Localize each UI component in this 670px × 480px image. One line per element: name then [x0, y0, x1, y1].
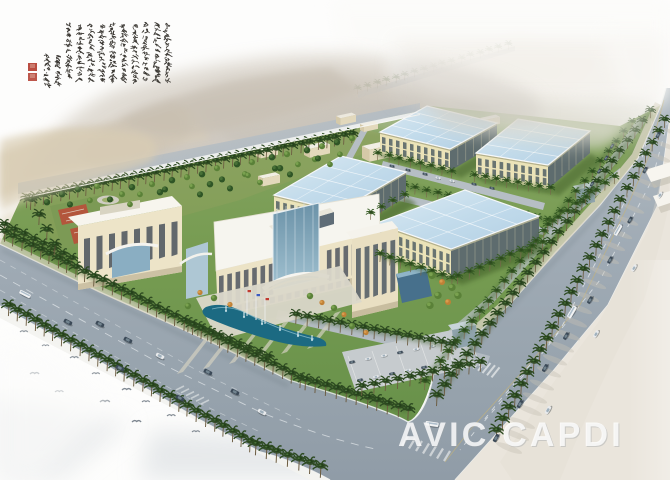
svg-text:AVIC CAPDI: AVIC CAPDI: [398, 416, 624, 454]
